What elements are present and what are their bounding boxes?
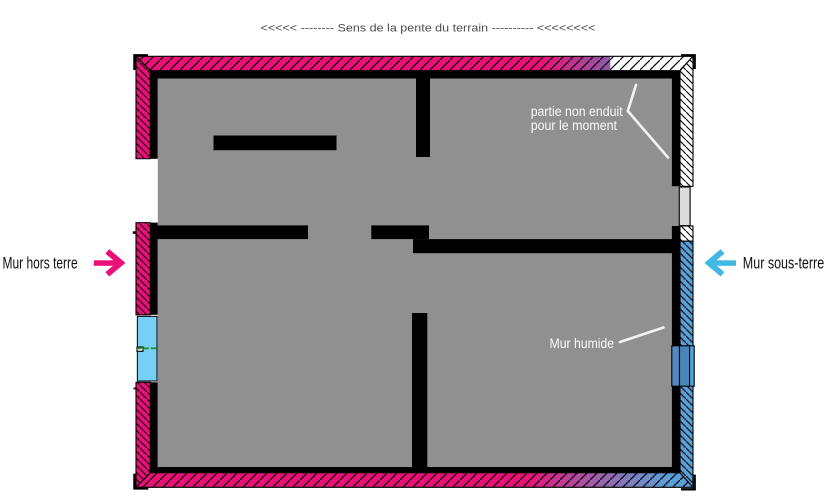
svg-text:pour le moment: pour le moment	[531, 118, 618, 133]
svg-text:Mur humide: Mur humide	[550, 335, 615, 351]
svg-text:<<<<< -------- Sens de la pent: <<<<< -------- Sens de la pente du terra…	[261, 23, 596, 35]
svg-text:Mur sous-terre: Mur sous-terre	[743, 254, 824, 273]
svg-text:Mur hors terre: Mur hors terre	[3, 254, 78, 273]
svg-text:partie non enduit: partie non enduit	[531, 104, 623, 119]
